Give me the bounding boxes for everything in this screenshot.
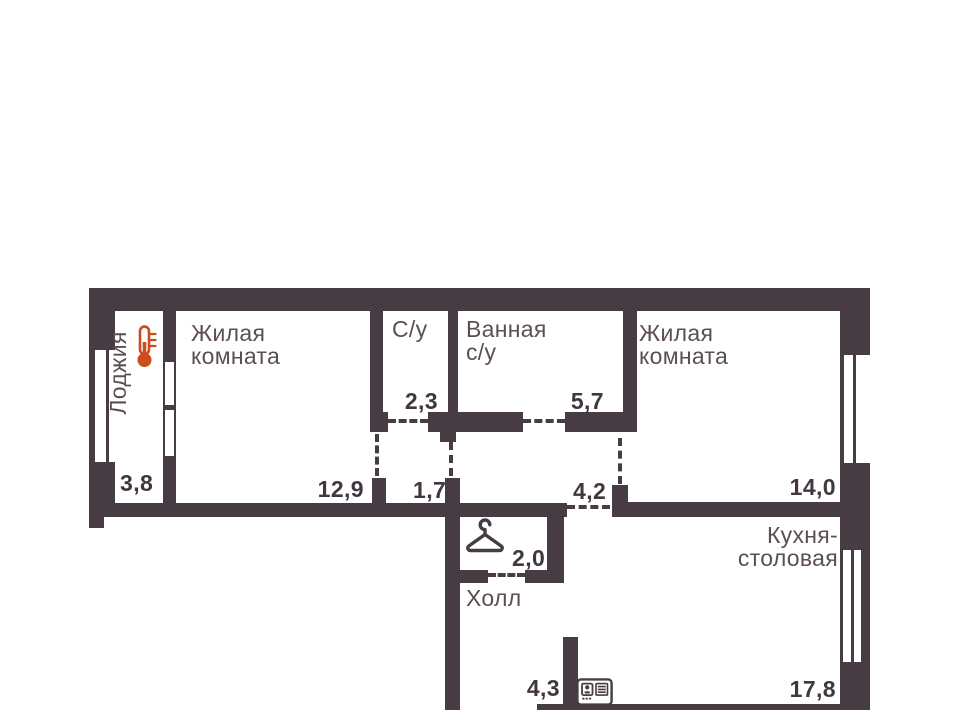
wall-kitchen-top bbox=[628, 502, 842, 517]
wall-bath-bottom-left bbox=[458, 412, 523, 432]
hanger-icon bbox=[464, 517, 506, 557]
wall-right-lower bbox=[840, 662, 870, 710]
door-wardrobe-opening bbox=[488, 573, 525, 577]
room-label-living-right: Жилая комната bbox=[639, 322, 728, 368]
window-living-right bbox=[844, 355, 870, 463]
wall-hall-left bbox=[445, 503, 460, 710]
wall-right-window2-strip-outer bbox=[861, 550, 870, 662]
area-hall: 4,3 bbox=[518, 677, 560, 699]
window-loggia-inner-transom bbox=[163, 405, 176, 410]
wall-pillar-corridor-mid bbox=[445, 478, 460, 504]
area-bathroom: 5,7 bbox=[560, 390, 604, 412]
room-label-wc: С/у bbox=[392, 318, 427, 341]
area-living-left: 12,9 bbox=[310, 478, 364, 500]
window-living-right-mullion bbox=[853, 355, 856, 463]
window-kitchen-mullion bbox=[851, 550, 854, 662]
wall-stub-below-wc bbox=[440, 432, 456, 442]
room-label-kitchen: Кухня- столовая bbox=[640, 524, 838, 570]
wall-wc-bottom-right bbox=[428, 412, 458, 432]
wall-wardrobe-bottom-left bbox=[445, 570, 488, 583]
wall-bottom-left bbox=[89, 503, 567, 517]
wall-bath-right bbox=[623, 311, 637, 432]
kitchen-entry-opening bbox=[567, 505, 610, 509]
wall-right-mid bbox=[840, 463, 870, 550]
area-living-right: 14,0 bbox=[778, 476, 836, 498]
floor-plan: Лоджия Жилая комната С/у Ванная с/у Жила… bbox=[0, 0, 960, 710]
door-living-right-opening bbox=[618, 438, 622, 484]
wall-pillar-corridor-right bbox=[612, 485, 628, 517]
room-label-loggia: Лоджия bbox=[107, 327, 133, 419]
door-wc-opening bbox=[388, 419, 428, 423]
zone-line-living-left bbox=[375, 434, 379, 476]
area-corridor-wc: 1,7 bbox=[413, 479, 446, 501]
room-label-hall: Холл bbox=[466, 587, 521, 610]
zone-line-corridor-mid bbox=[449, 442, 453, 476]
wall-bottom-left-notch bbox=[89, 517, 104, 528]
area-wardrobe: 2,0 bbox=[512, 547, 545, 569]
wall-right-upper bbox=[840, 288, 870, 355]
area-corridor-bath: 4,2 bbox=[573, 480, 606, 502]
area-kitchen: 17,8 bbox=[776, 678, 836, 700]
wall-wc-bottom-left bbox=[370, 412, 388, 432]
area-loggia: 3,8 bbox=[120, 472, 153, 494]
door-bathroom-opening bbox=[523, 419, 565, 423]
wall-loggia-lower bbox=[163, 456, 176, 517]
room-label-bathroom: Ванная с/у bbox=[466, 318, 547, 364]
intercom-panel-icon bbox=[576, 678, 613, 706]
wall-top bbox=[89, 288, 870, 311]
thermometer-icon bbox=[136, 325, 158, 368]
wall-pillar-corridor-left bbox=[372, 478, 386, 504]
wall-wardrobe-bottom-right bbox=[525, 570, 564, 583]
room-label-living-left: Жилая комната bbox=[191, 322, 280, 368]
area-wc: 2,3 bbox=[395, 390, 438, 412]
wall-loggia-upper bbox=[163, 311, 176, 362]
